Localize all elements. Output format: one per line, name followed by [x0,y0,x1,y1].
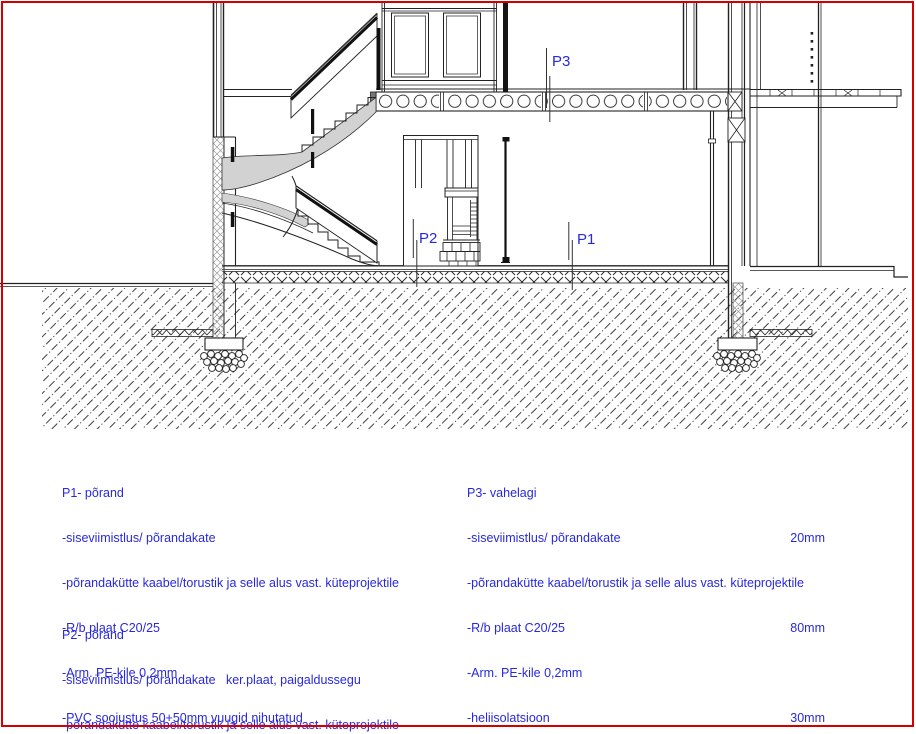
spec-label: -R/b plaat C20/25 [467,621,565,636]
spec-line: -R/b plaat C20/25 80mm [467,621,825,636]
spec-label: -siseviimistlus/ põrandakate [467,531,621,546]
far-right-wall [811,3,821,266]
spec-line: -siseviimistlus/ põrandakate ker.plaat, … [62,673,432,688]
tag-p2: P2 [419,230,437,247]
stair-mass-fill [222,98,376,191]
spec-value: 80mm [790,621,825,636]
grade-line-left [0,284,213,287]
spec-p2: P2- põrand -siseviimistlus/ põrandakate … [62,598,432,734]
building-section-drawing: P3 P1 P2 [0,0,916,455]
fireplace [404,136,481,267]
tag-p3: P3 [552,53,570,70]
spec-line: -siseviimistlus/ põrandakate [62,531,432,546]
staircase [222,13,381,266]
spec-value: 30mm [790,711,825,726]
spec-p2-title: P2- põrand [62,628,432,643]
spec-line: -heliisolatsioon 30mm [467,711,825,726]
spec-p1-title: P1- põrand [62,486,432,501]
drawing-sheet: P3 P1 P2 P1- põrand -siseviimistlus/ põr… [0,0,916,734]
spec-value: 20mm [790,531,825,546]
interior-wall-upper [684,3,697,90]
ground-floor-slab [222,266,728,283]
spec-line: -siseviimistlus/ põrandakate 20mm [467,531,825,546]
spec-label: -heliisolatsioon [467,711,550,726]
glass-partition [501,137,510,263]
spec-p3: P3- vahelagi -siseviimistlus/ põrandakat… [467,456,825,734]
spec-label: -põrandakütte kaabel/torustik ja selle a… [467,576,804,591]
terrace-slab [750,90,901,108]
tag-p1: P1 [577,231,595,248]
ground-hatch [42,288,908,429]
interior-wall-lower [709,111,716,266]
spec-line: -põrandakütte kaabel/torustik ja selle a… [62,718,432,733]
hollow-core-slab [371,89,751,111]
spec-line: -põrandakütte kaabel/torustik ja selle a… [62,576,432,591]
spec-line: -Arm. PE-kile 0,2mm [467,666,825,681]
spec-p3-title: P3- vahelagi [467,486,825,501]
pavement-right [750,267,908,278]
spec-line: -põrandakütte kaabel/torustik ja selle a… [467,576,825,591]
balustrade-panels [382,3,508,92]
spec-label: -Arm. PE-kile 0,2mm [467,666,582,681]
